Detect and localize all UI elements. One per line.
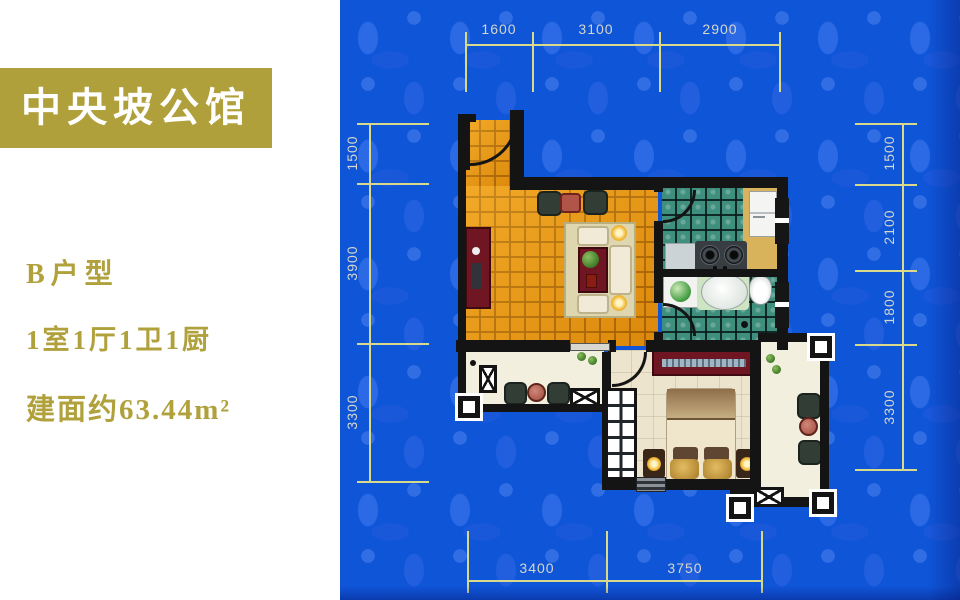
room-layout-label: 1室1厅1卫1厨 [26, 318, 212, 357]
dim-left-2: 3900 [344, 245, 360, 280]
balcony-left-door-stop [470, 360, 476, 366]
column-balcony-top-right [810, 336, 832, 358]
wall-bedroom-top [646, 340, 758, 352]
burner-right [724, 245, 744, 265]
sofa-right [609, 245, 632, 295]
dim-bottom-1: 3400 [519, 560, 554, 576]
sink-faucet [753, 216, 765, 218]
dim-top-3: 2900 [702, 21, 737, 37]
bathroom-window [775, 282, 789, 328]
right-edge-shade [928, 0, 960, 600]
dim-right-1: 1500 [881, 135, 897, 170]
balcony-right-table [799, 417, 818, 436]
sink-divider [750, 212, 776, 214]
bedroom-window [605, 388, 637, 480]
coffee-table-vase [586, 274, 597, 288]
dim-bottom-2: 3750 [667, 560, 702, 576]
wall-kitchen-top [655, 177, 785, 188]
wardrobe-sliding-rail [662, 359, 746, 367]
bed-blanket [667, 389, 735, 420]
shaft-balcony-left-horizontal [570, 388, 600, 407]
dining-table [560, 193, 581, 213]
wall-kitchen-bath [654, 269, 786, 277]
stove [695, 241, 747, 272]
dim-right-2: 2100 [881, 209, 897, 244]
balcony-right-plant-1 [766, 354, 775, 363]
wall-balcony-right-side [820, 348, 829, 502]
toilet [749, 276, 772, 305]
nightstand-left [643, 449, 665, 478]
floor-lamp-bottom [611, 295, 627, 311]
kitchen-cabinet [665, 243, 696, 272]
column-balcony-bottom-right [812, 492, 834, 514]
balcony-right-floor [760, 340, 828, 502]
wall-living-kitchen [654, 221, 663, 303]
pillow-gold-left [670, 459, 699, 479]
balcony-left-table [527, 383, 546, 402]
dim-right-4: 3300 [881, 389, 897, 424]
project-name-banner: 中央坡公馆 [0, 68, 272, 148]
kitchen-window [775, 198, 789, 244]
balcony-sliding-door [570, 343, 610, 351]
bedroom-step [636, 477, 666, 492]
project-name: 中央坡公馆 [21, 85, 251, 130]
dim-right-3: 1800 [881, 289, 897, 324]
wall-living-bottom-a [456, 340, 570, 352]
wall-bedroom-balcony [750, 340, 761, 500]
bottom-edge-shade [340, 586, 960, 600]
unit-type-label: B户型 [26, 252, 119, 292]
coffee-table-plant [582, 251, 599, 268]
armchair-top [577, 226, 609, 246]
floor-lamp-top [611, 225, 627, 241]
left-panel: 中央坡公馆 B户型 1室1厅1卫1厨 建面约63.44m² [0, 0, 340, 600]
wall-bedroom-bottom [602, 479, 738, 490]
balcony-right-chair-1 [797, 393, 821, 419]
burner-left [700, 245, 720, 265]
flyer-page: 中央坡公馆 B户型 1室1厅1卫1厨 建面约63.44m² 1600 3100 … [0, 0, 960, 600]
balcony-left-chair-2 [547, 382, 570, 405]
bed [666, 388, 736, 482]
balcony-right-plant-2 [772, 365, 781, 374]
balcony-right-chair-2 [798, 440, 822, 465]
tv-cabinet-decor [472, 247, 480, 255]
kitchen-sink [749, 191, 777, 237]
dim-left-3: 3300 [344, 394, 360, 429]
entrance-door-leaf [462, 116, 470, 170]
balcony-left-plant-2 [588, 356, 597, 365]
column-balcony-bottom-left [729, 497, 751, 519]
pillow-gold-right [703, 459, 732, 479]
wall-divider-stub [654, 186, 663, 192]
wardrobe [652, 349, 758, 376]
dining-chair-right [583, 190, 608, 215]
dining-chair-left [537, 191, 562, 216]
bathroom-door-stop [741, 321, 748, 328]
dim-top-2: 3100 [578, 21, 613, 37]
tv-cabinet [465, 227, 491, 309]
washer-drum [670, 281, 691, 302]
wall-top-mid [510, 177, 660, 190]
floor-area-label: 建面约63.44m² [26, 386, 231, 428]
column-balcony-left [458, 396, 480, 418]
tv-set [471, 263, 482, 289]
bathroom-basin [701, 274, 748, 310]
shaft-balcony-left-vertical [479, 365, 497, 393]
dim-top-1: 1600 [481, 21, 516, 37]
balcony-left-plant-1 [577, 352, 586, 361]
armchair-bottom [577, 294, 609, 314]
dim-left-1: 1500 [344, 135, 360, 170]
nightstand-lamp-left [647, 457, 661, 471]
balcony-left-chair-1 [504, 382, 527, 405]
shaft-balcony-right [754, 487, 784, 507]
